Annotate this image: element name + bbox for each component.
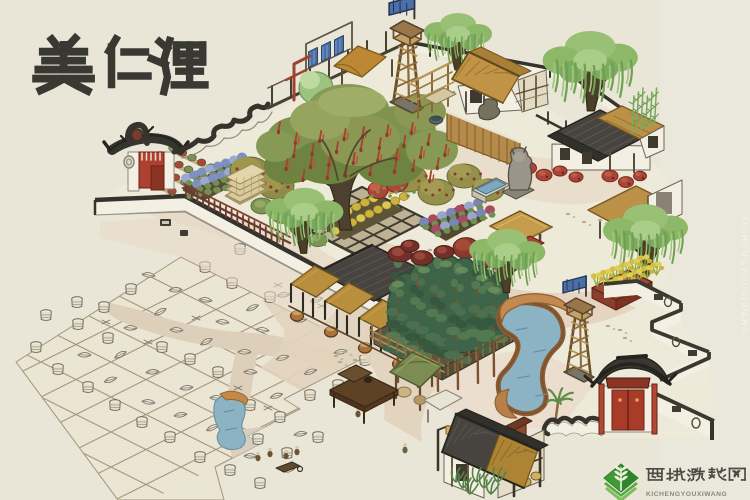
svg-text:KICHENGYOUXIWANG: KICHENGYOUXIWANG <box>646 491 727 498</box>
svg-text:XICHENGYOUXIWANG: XICHENGYOUXIWANG <box>739 215 749 336</box>
